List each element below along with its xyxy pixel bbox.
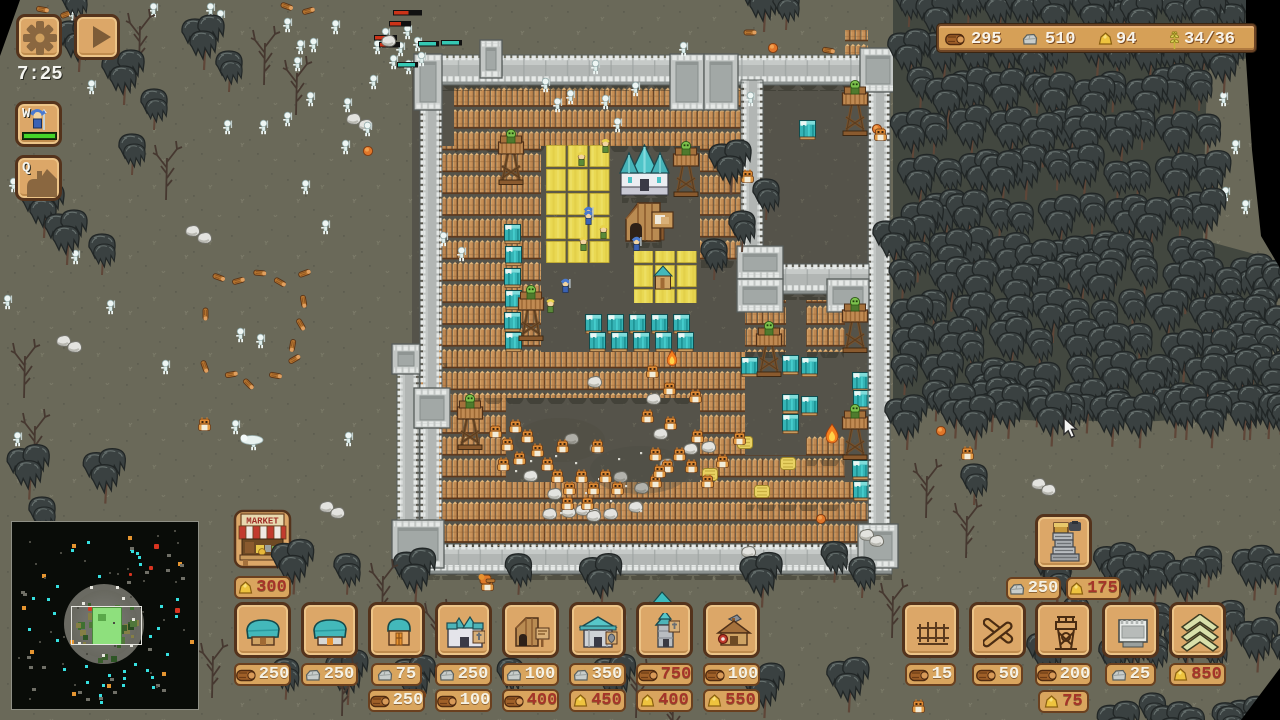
- svg-text:MARKET: MARKET: [246, 517, 279, 527]
